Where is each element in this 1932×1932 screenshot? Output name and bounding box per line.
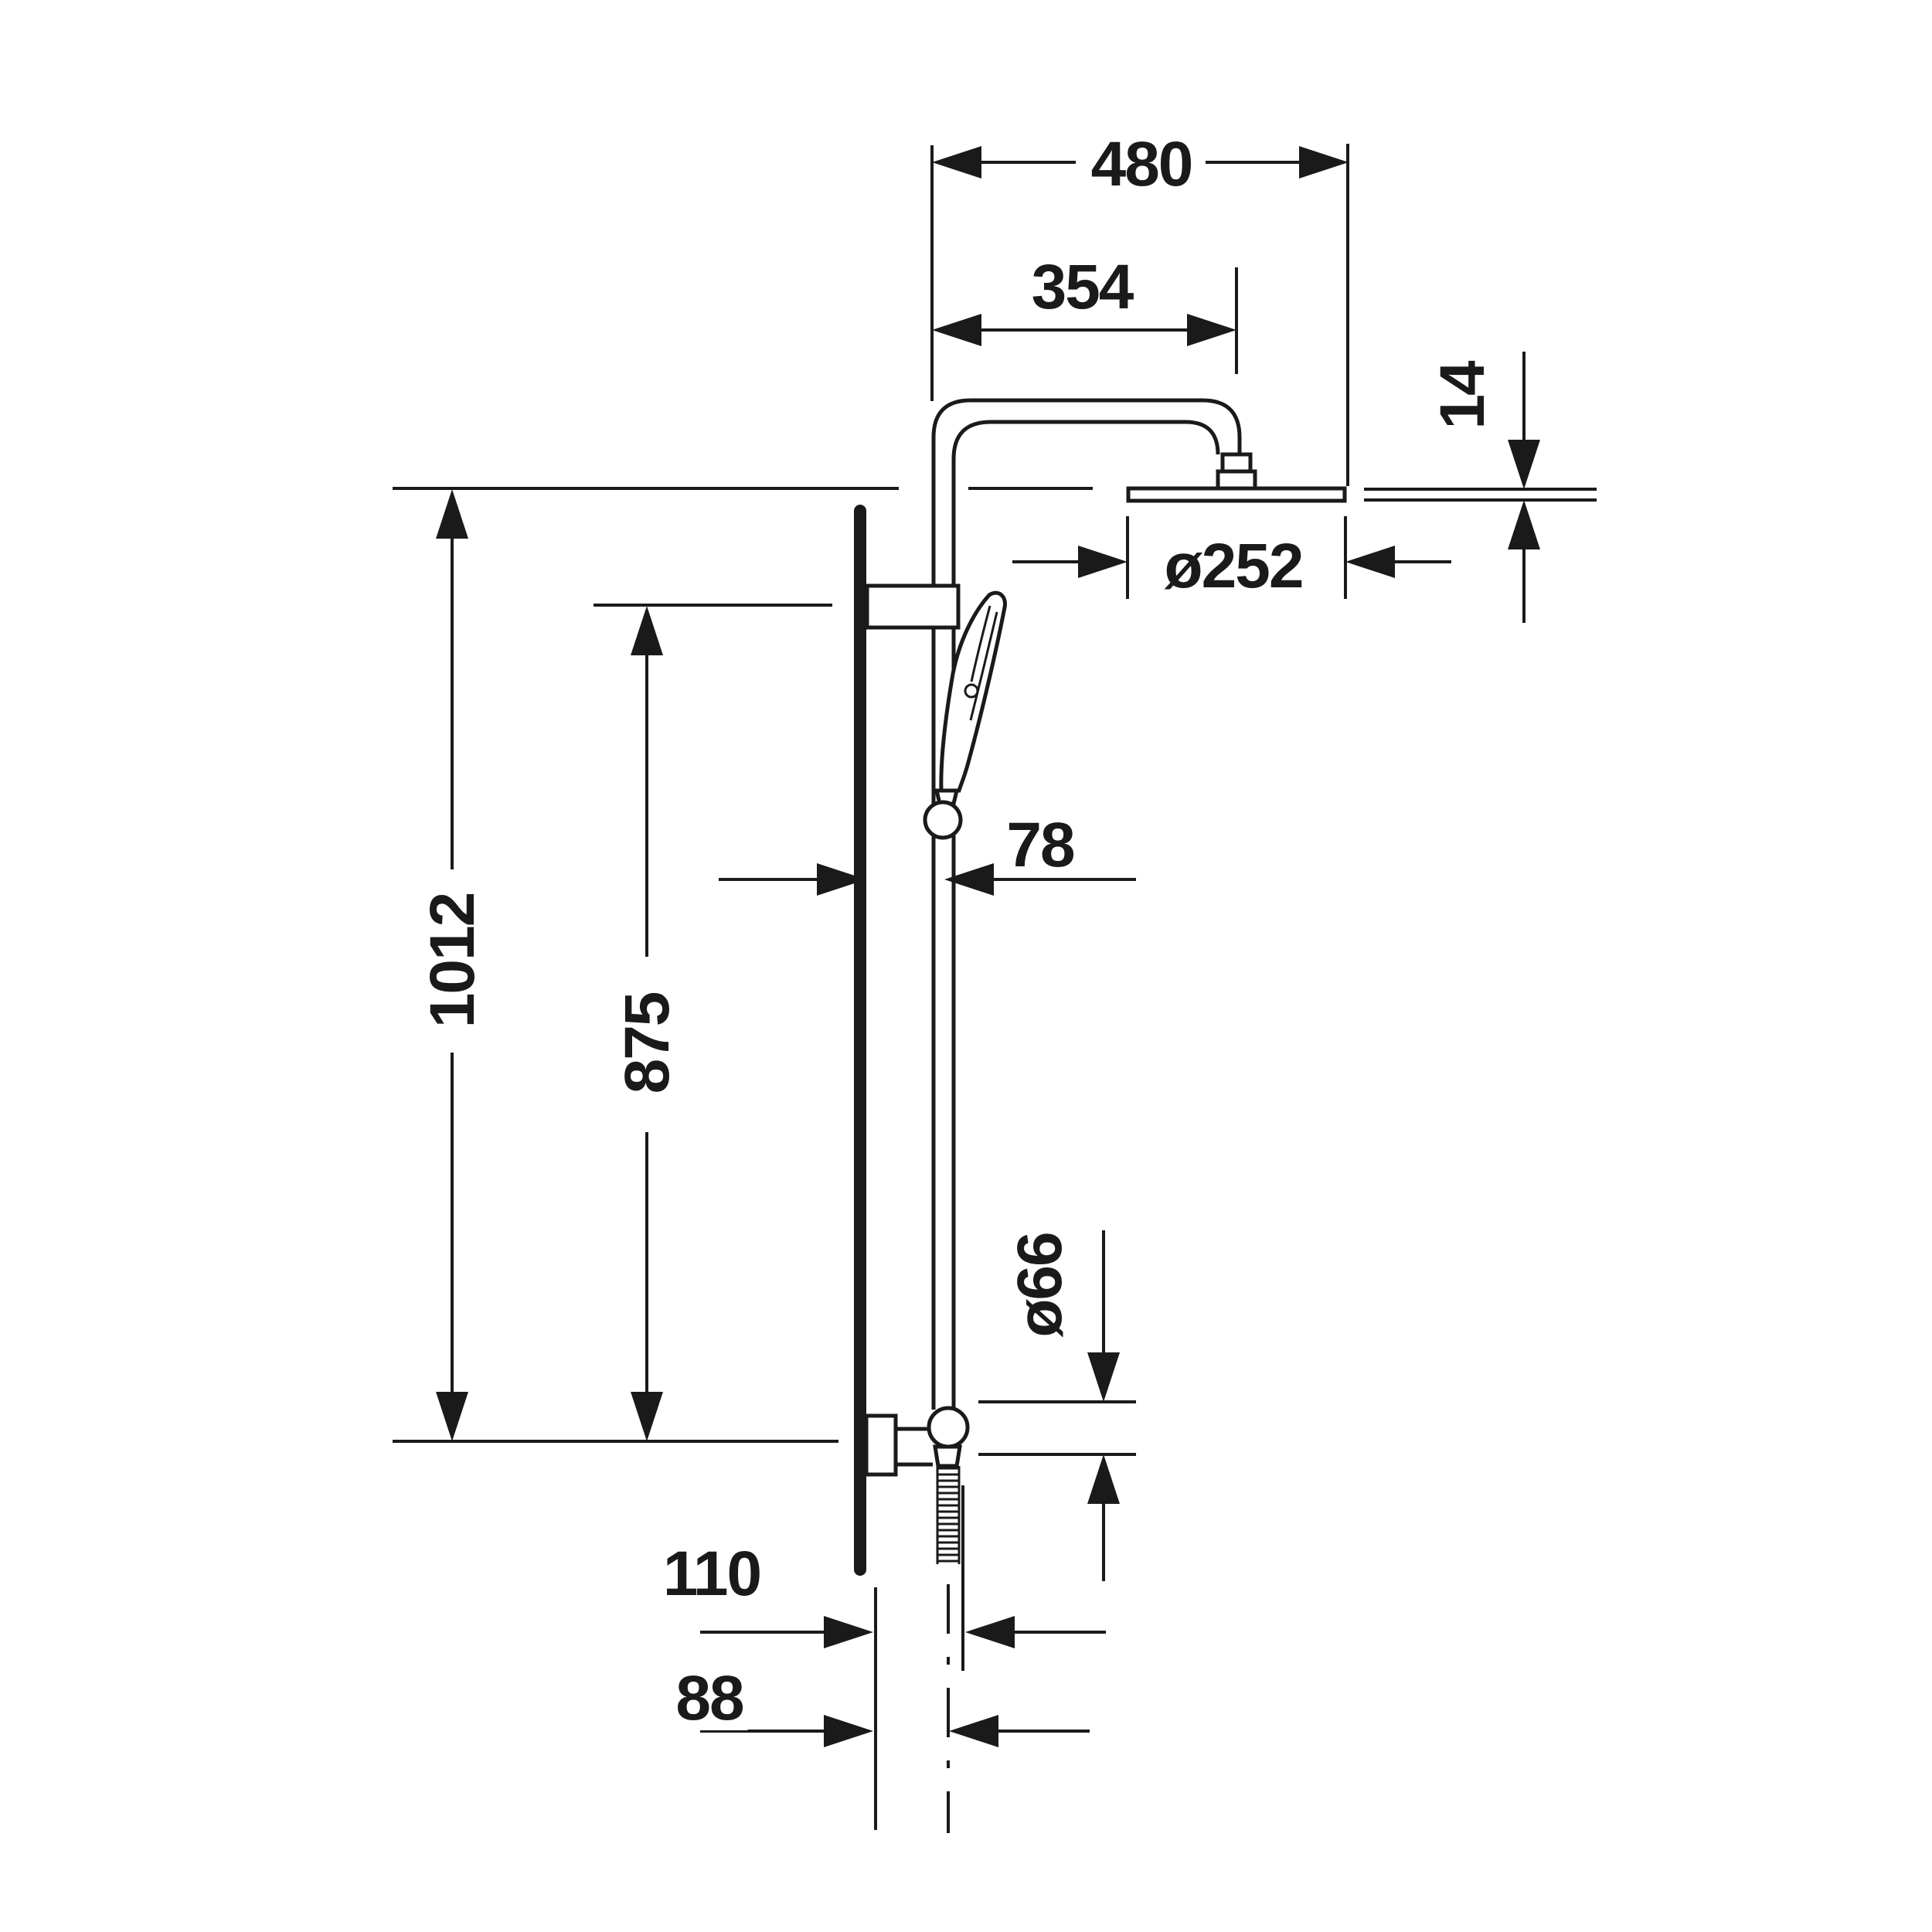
arrowhead <box>1345 546 1395 578</box>
overhead-shower-plate <box>1128 488 1345 501</box>
dim-label-480: 480 <box>1087 133 1197 196</box>
dim-label-875: 875 <box>611 993 684 1094</box>
slider-knob <box>925 802 961 838</box>
arrowhead <box>436 489 468 539</box>
dim-label-88: 88 <box>671 1667 747 1730</box>
dim-label-14: 14 <box>1427 362 1499 429</box>
head-connector-base <box>1218 471 1255 488</box>
arrowhead <box>1087 1352 1120 1402</box>
drawing-canvas <box>0 0 1932 1932</box>
arrowhead <box>631 606 663 655</box>
technical-drawing: 480 354 14 ø252 78 1012 875 ø66 110 88 <box>0 0 1932 1932</box>
dim-label-66: ø66 <box>1004 1233 1077 1337</box>
arrowhead <box>1508 440 1540 489</box>
slider-holder <box>867 586 958 628</box>
extension-lines <box>393 144 1597 1830</box>
arrowhead <box>436 1392 468 1441</box>
dim-label-110: 110 <box>658 1543 765 1606</box>
shower-column <box>860 400 1345 1833</box>
arrowhead <box>1087 1454 1120 1504</box>
dimension-lines <box>436 146 1540 1747</box>
arrowhead <box>1078 546 1128 578</box>
arrowhead <box>1187 314 1236 346</box>
arrowhead <box>1299 146 1349 179</box>
dim-label-1012: 1012 <box>417 893 489 1028</box>
arrowhead <box>824 1715 873 1747</box>
arrowhead <box>1508 500 1540 549</box>
arrowhead <box>965 1616 1015 1648</box>
dim-label-252: ø252 <box>1160 535 1308 598</box>
arrowhead <box>631 1392 663 1441</box>
arrowhead <box>932 146 981 179</box>
arrowhead <box>824 1616 873 1648</box>
shower-hose <box>937 1466 959 1564</box>
hose-nut <box>935 1447 960 1466</box>
arrowhead <box>932 314 981 346</box>
arrowhead <box>949 1715 998 1747</box>
supply-elbow <box>929 1408 968 1447</box>
dim-label-78: 78 <box>1002 814 1078 877</box>
wall-bracket <box>866 1416 896 1475</box>
dim-label-354: 354 <box>1027 256 1138 319</box>
head-connector-flange <box>1223 454 1250 471</box>
